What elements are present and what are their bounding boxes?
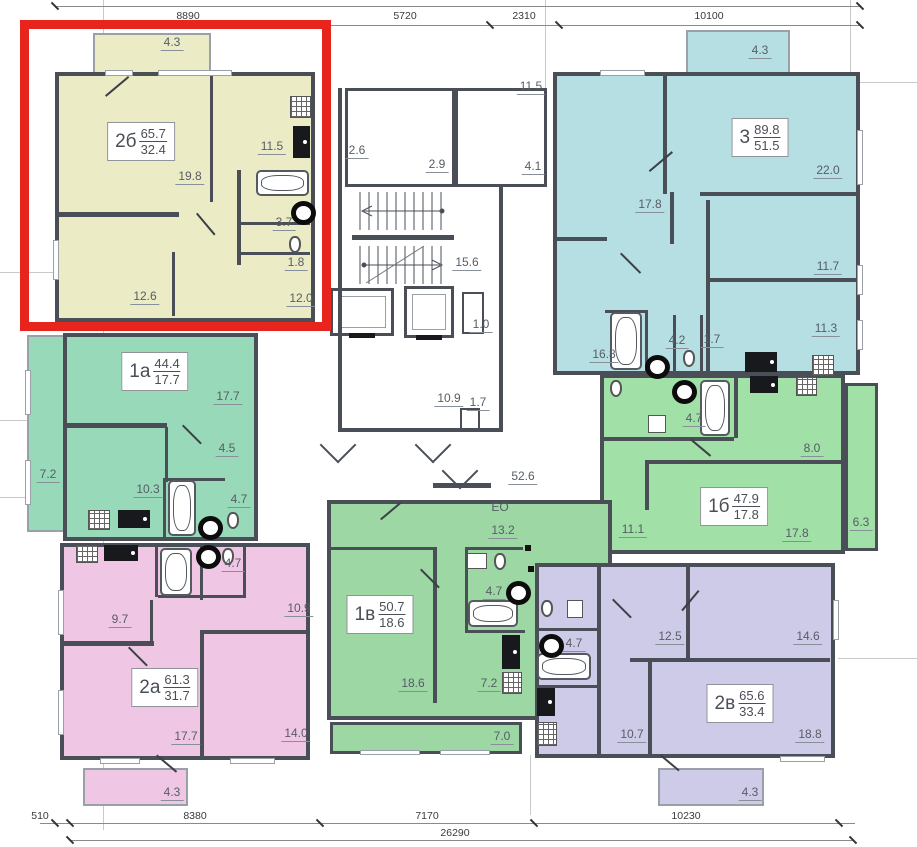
room-label: 4.7 <box>563 637 586 652</box>
washbasin-icon <box>196 545 221 569</box>
annotation-label: ЕО <box>488 501 511 515</box>
apartment-areas: 44.417.7 <box>153 356 180 387</box>
room-label: 2.6 <box>346 144 369 159</box>
room-label: 7.0 <box>491 730 514 745</box>
partition <box>200 630 308 634</box>
washbasin-icon <box>645 355 670 379</box>
stove-icon <box>76 545 98 563</box>
window <box>230 758 275 764</box>
dim-label: 10100 <box>694 10 723 22</box>
partition <box>604 437 734 441</box>
partition <box>597 565 601 755</box>
washer-icon <box>648 415 666 433</box>
room-label: 6.3 <box>850 516 873 531</box>
room-label: 2.9 <box>426 158 449 173</box>
partition <box>163 478 166 538</box>
axis-line <box>858 82 917 83</box>
room-label: 22.0 <box>813 164 842 179</box>
window <box>360 750 420 755</box>
dim-label: 7170 <box>415 810 438 822</box>
room-label: 14.6 <box>793 630 822 645</box>
stove-icon <box>812 355 834 376</box>
core-wall <box>338 88 342 432</box>
dimension-line-bottom <box>70 840 853 841</box>
kitchen-sink-icon <box>745 352 777 372</box>
elevator <box>404 286 454 338</box>
room-label: 18.6 <box>398 677 427 692</box>
dim-label: 510 <box>31 810 49 822</box>
apartment-code: 2а <box>139 677 160 699</box>
room-label: 1.7 <box>467 396 490 411</box>
room-label: 10.7 <box>617 728 646 743</box>
stove-icon <box>796 377 817 396</box>
partition <box>331 547 433 550</box>
axis-line <box>530 755 531 815</box>
partition <box>648 662 652 756</box>
partition <box>700 192 856 196</box>
room-label: 11.7 <box>814 260 842 275</box>
room-label: 11.1 <box>619 523 647 538</box>
washbasin-icon <box>672 380 697 404</box>
room-label: 17.8 <box>782 527 811 542</box>
room-label: 16.8 <box>589 348 618 363</box>
room-label: 4.7 <box>222 557 245 572</box>
dim-label: 2310 <box>512 10 535 22</box>
core-wall <box>499 187 503 432</box>
room-label: 4.5 <box>216 442 239 457</box>
toilet-icon <box>541 600 553 617</box>
room-label: 17.7 <box>213 390 242 405</box>
axis-line <box>838 658 917 659</box>
room-label: 1.0 <box>470 318 493 333</box>
window <box>58 690 64 735</box>
room-label: 4.2 <box>666 334 689 349</box>
window <box>58 590 64 635</box>
partition <box>67 423 167 428</box>
window <box>25 460 31 505</box>
room-label: 10.3 <box>133 483 162 498</box>
room-label: 4.3 <box>161 786 184 801</box>
room-label: 14.0 <box>281 727 310 742</box>
room-label: 10.9 <box>284 602 313 617</box>
partition <box>557 237 607 241</box>
room-label: 1.7 <box>701 333 724 348</box>
partition <box>155 545 158 597</box>
bathtub-icon <box>168 480 196 536</box>
partition <box>537 628 597 631</box>
vent-shaft <box>528 566 534 572</box>
room-label: 4.7 <box>483 585 506 600</box>
apartment-1a-label: 1а 44.417.7 <box>121 352 188 391</box>
dim-label: 5720 <box>393 10 416 22</box>
dimension-line-bottom <box>40 823 855 824</box>
apartment-2a-label: 2а 61.331.7 <box>131 668 198 707</box>
room-label: 12.5 <box>655 630 684 645</box>
window <box>833 600 839 640</box>
stove-icon <box>88 510 110 530</box>
stove-icon <box>537 722 557 746</box>
partition <box>645 460 841 464</box>
dimension-line-top <box>55 6 860 7</box>
partition <box>433 483 491 488</box>
washbasin-icon <box>539 634 564 658</box>
partition <box>165 427 168 482</box>
kitchen-sink-icon <box>118 510 150 528</box>
kitchen-sink-icon <box>104 545 138 561</box>
room-label: 11.3 <box>812 322 840 337</box>
utility-shaft <box>460 408 480 430</box>
room-label: 7.2 <box>478 677 501 692</box>
toilet-icon <box>494 553 506 570</box>
toilet-icon <box>227 512 239 529</box>
bathtub-icon <box>700 380 730 436</box>
room-label: 4.1 <box>522 160 545 175</box>
room-label: 10.9 <box>434 392 463 407</box>
partition <box>64 641 154 646</box>
washbasin-icon <box>506 581 531 605</box>
room-label: 17.8 <box>635 198 664 213</box>
washer-icon <box>567 600 583 618</box>
axis-line <box>0 420 30 421</box>
window <box>857 265 863 295</box>
partition <box>734 378 738 438</box>
kitchen-sink-icon <box>537 688 555 716</box>
window <box>857 130 863 185</box>
partition <box>150 600 153 645</box>
dim-label-total: 26290 <box>440 827 469 839</box>
apartment-2v-label: 2в 65.633.4 <box>707 684 774 723</box>
apartment-code: 1б <box>708 496 729 518</box>
window <box>600 70 645 76</box>
apartment-areas: 61.331.7 <box>163 672 190 703</box>
vent-shaft <box>525 545 531 551</box>
electric-panel-icon <box>467 553 487 569</box>
room-label: 4.7 <box>683 412 706 427</box>
bathtub-icon <box>537 653 591 680</box>
apartment-areas: 50.718.6 <box>378 599 405 630</box>
partition <box>663 76 667 194</box>
apartment-1v-label: 1в 50.718.6 <box>347 595 414 634</box>
room-label: 17.7 <box>171 730 200 745</box>
door-swing <box>415 427 452 464</box>
room-label: 52.6 <box>508 470 537 485</box>
floor-plan: 8890 5720 2310 10100 510 8380 7170 10230… <box>0 0 917 847</box>
stairs <box>352 190 454 288</box>
partition <box>686 565 690 660</box>
apartment-1b-label: 1б 47.917.8 <box>700 487 768 526</box>
apartment-areas: 47.917.8 <box>733 491 760 522</box>
kitchen-sink-icon <box>502 635 520 669</box>
room-label: 7.2 <box>37 468 60 483</box>
elevator-cab <box>338 296 386 328</box>
bathtub-icon <box>468 600 518 627</box>
elevator-cab <box>412 294 446 330</box>
toilet-icon <box>683 350 695 367</box>
window <box>780 756 825 762</box>
toilet-icon <box>610 380 622 397</box>
partition <box>630 658 830 662</box>
window <box>100 758 140 764</box>
room-label: 11.5 <box>517 80 545 95</box>
apartment-areas: 89.851.5 <box>753 122 780 153</box>
window <box>25 370 31 415</box>
partition <box>468 547 523 550</box>
apartment-code: 2в <box>715 693 736 715</box>
window <box>440 750 490 755</box>
room-label: 4.3 <box>739 786 762 801</box>
window <box>857 320 863 350</box>
selection-highlight <box>20 20 331 331</box>
room-label: 15.6 <box>452 256 481 271</box>
room-label: 18.8 <box>795 728 824 743</box>
room-label: 4.7 <box>228 493 251 508</box>
core-wall <box>338 428 503 432</box>
partition <box>433 547 437 703</box>
stove-icon <box>502 672 522 694</box>
bathtub-icon <box>160 548 192 596</box>
apartment-3-label: 3 89.851.5 <box>732 118 789 157</box>
partition <box>670 192 674 244</box>
apartment-1a-balcony <box>27 335 65 532</box>
partition <box>465 630 525 633</box>
room-label: 9.7 <box>109 613 132 628</box>
door-swing <box>320 427 357 464</box>
partition <box>710 278 856 282</box>
dim-label: 10230 <box>671 810 700 822</box>
dim-label: 8380 <box>183 810 206 822</box>
apartment-3-balcony <box>686 30 790 74</box>
room-label: 8.0 <box>801 442 824 457</box>
apartment-areas: 65.633.4 <box>738 688 765 719</box>
room-label: 4.3 <box>749 44 772 59</box>
partition <box>645 464 649 510</box>
apartment-code: 1а <box>129 361 150 383</box>
kitchen-sink-icon <box>750 376 778 393</box>
washbasin-icon <box>198 516 223 540</box>
room-label: 13.2 <box>488 524 517 539</box>
apartment-code: 3 <box>740 127 751 149</box>
apartment-code: 1в <box>355 604 376 626</box>
